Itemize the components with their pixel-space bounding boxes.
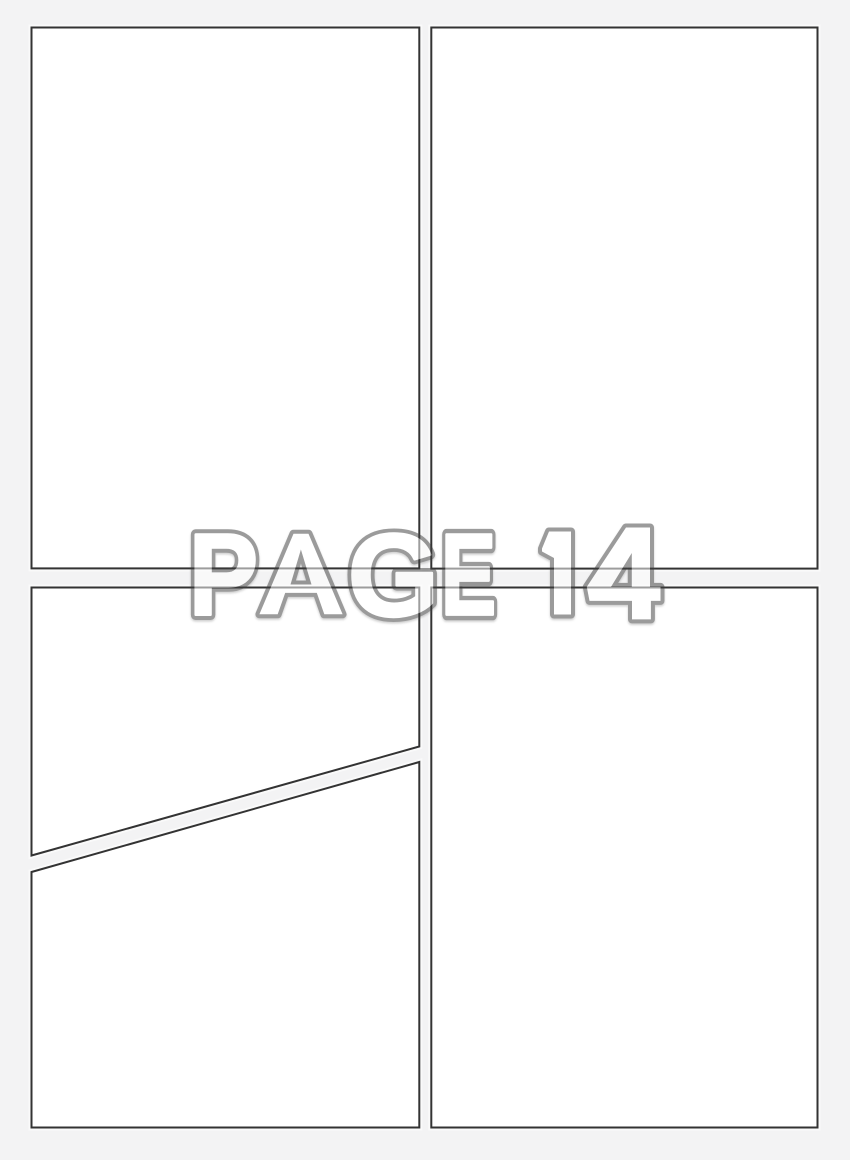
svg-text:G: G	[348, 509, 440, 641]
svg-text:E: E	[441, 511, 497, 640]
svg-text:P: P	[189, 510, 259, 639]
